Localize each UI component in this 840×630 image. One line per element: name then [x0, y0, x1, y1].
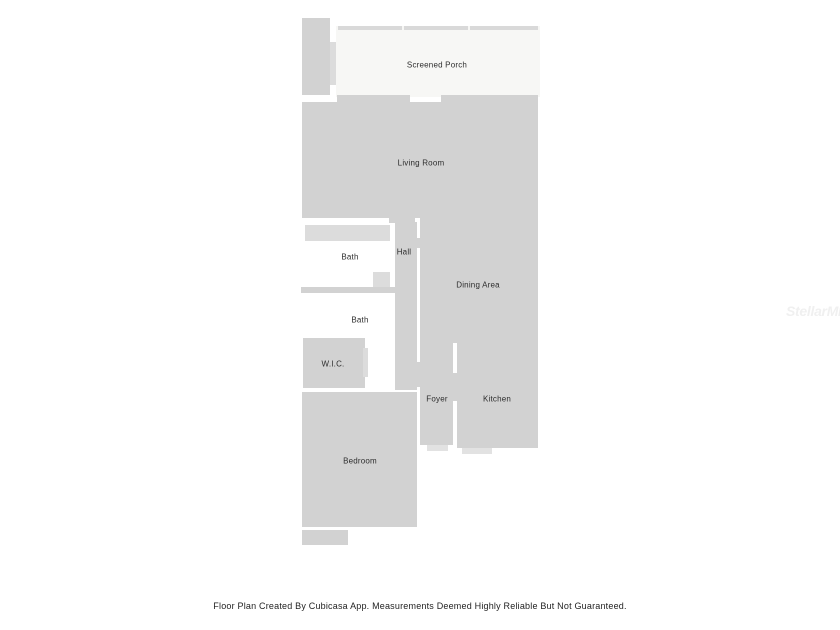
porch-screen-segment-3 [470, 26, 538, 30]
bath-divider-wall [301, 287, 395, 293]
floor-plan: Screened PorchLiving RoomBathHallBathDin… [0, 0, 840, 630]
porch-sill-right [441, 95, 538, 102]
porch-screen-segment-1 [338, 26, 402, 30]
porch-deck [302, 18, 330, 95]
hall-label: Hall [397, 248, 412, 257]
hall-foyer-bridge [415, 362, 422, 387]
wic-door [363, 348, 368, 377]
porch-screen-segment-2 [404, 26, 468, 30]
floor-plan-caption: Floor Plan Created By Cubicasa App. Meas… [0, 601, 840, 611]
bath-lower-label: Bath [351, 316, 368, 325]
kitchen-label: Kitchen [483, 395, 511, 404]
bath1-vanity [373, 272, 390, 287]
foyer-label: Foyer [426, 395, 447, 404]
bath1-tub [305, 225, 390, 241]
living-room-label: Living Room [398, 159, 445, 168]
dining-area-label: Dining Area [456, 281, 500, 290]
bedroom-label: Bedroom [343, 457, 377, 466]
floor-plan-page: Screened PorchLiving RoomBathHallBathDin… [0, 0, 840, 630]
wic-label: W.I.C. [322, 360, 345, 369]
foyer-step [427, 445, 448, 451]
kitchen-step [462, 448, 492, 454]
mls-watermark: StellarMLS [786, 303, 840, 319]
porch-sill-left [337, 95, 410, 102]
bedroom-step [302, 530, 348, 545]
screened-porch-label: Screened Porch [407, 61, 467, 70]
bath-upper-label: Bath [341, 253, 358, 262]
